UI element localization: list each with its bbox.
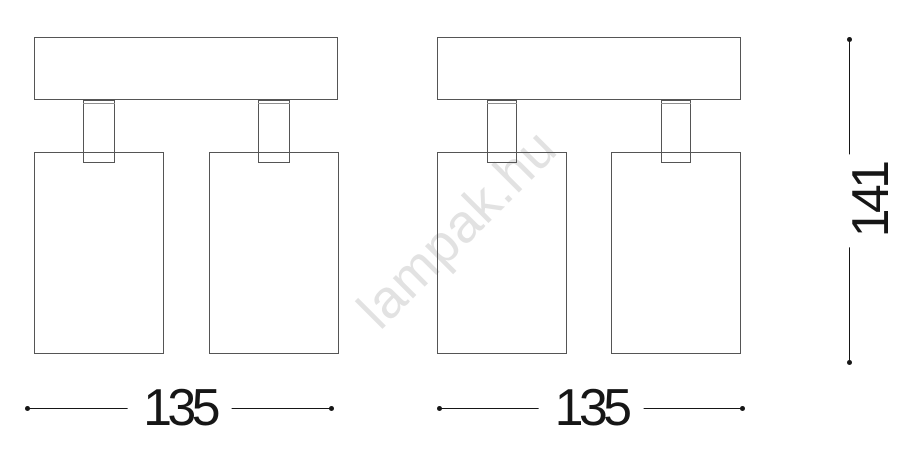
- spotlight-head: [34, 152, 164, 354]
- dimension-endpoint-dot: [25, 406, 30, 411]
- dimension-endpoint-dot: [847, 360, 852, 365]
- dimension-endpoint-dot: [740, 406, 745, 411]
- spotlight-head: [437, 152, 567, 354]
- dimension-endpoint-dot: [329, 406, 334, 411]
- mounting-plate: [437, 37, 741, 100]
- dimension-endpoint-dot: [847, 37, 852, 42]
- mounting-plate: [34, 37, 338, 100]
- spotlight-head: [611, 152, 741, 354]
- width-dimension-right-label: 135: [539, 382, 644, 434]
- dimension-endpoint-dot: [437, 406, 442, 411]
- height-dimension-label: 141: [845, 155, 897, 248]
- spotlight-head: [209, 152, 339, 354]
- technical-drawing-canvas: lampak.hu 135 135 141: [0, 0, 920, 458]
- width-dimension-left-label: 135: [127, 382, 232, 434]
